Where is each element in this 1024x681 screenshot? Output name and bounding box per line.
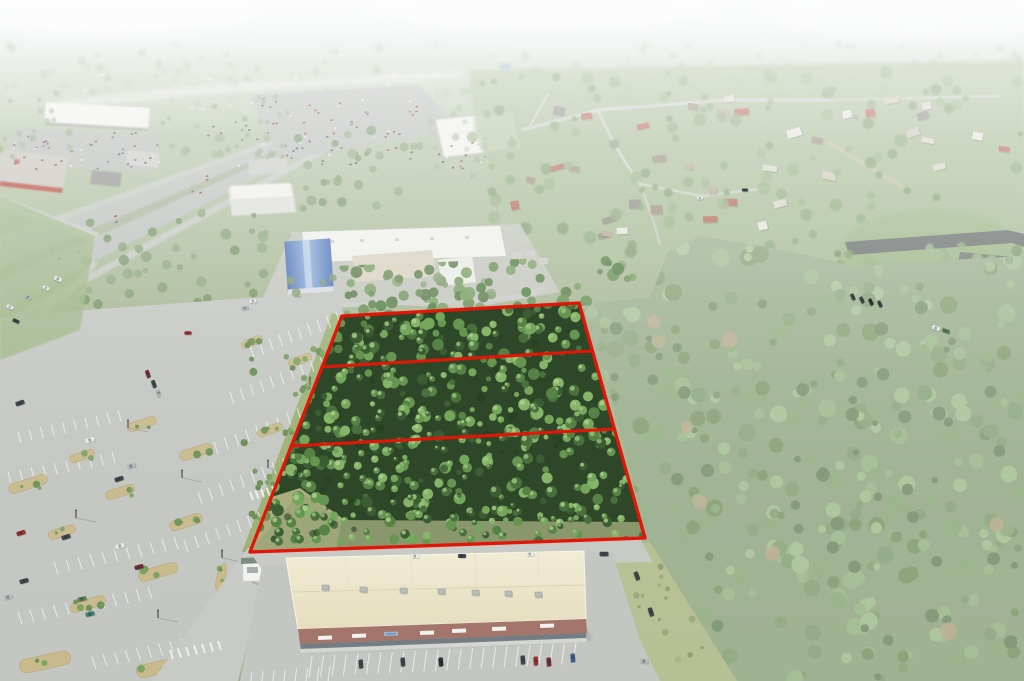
tree-highlight [549, 334, 553, 338]
tree [194, 124, 199, 129]
tree [400, 143, 409, 152]
tree [366, 125, 376, 135]
bush [257, 480, 263, 486]
canopy-shadow [351, 527, 357, 533]
tree [809, 230, 818, 239]
tree-highlight [392, 486, 395, 489]
tree-highlight [567, 448, 571, 452]
tree [156, 61, 162, 67]
tree-highlight [393, 318, 395, 320]
tree [337, 539, 343, 545]
tree [515, 373, 525, 383]
light-pole-head [309, 377, 311, 379]
tree [78, 58, 86, 66]
tree [522, 52, 530, 60]
tree-highlight [441, 373, 444, 376]
tree-highlight [435, 446, 437, 448]
tree-highlight [294, 495, 299, 500]
tree-highlight [343, 499, 346, 502]
tree [399, 334, 405, 340]
storefront-sign [540, 624, 554, 628]
tree [450, 392, 461, 403]
tree-highlight [386, 517, 391, 522]
tree [278, 113, 282, 117]
tree [443, 89, 452, 98]
tree [365, 328, 374, 337]
island-bush [20, 485, 23, 488]
tree [720, 162, 728, 170]
tree [1011, 51, 1018, 58]
tree-highlight [517, 464, 521, 468]
tree [574, 484, 581, 491]
tree [245, 133, 250, 138]
tree [305, 481, 316, 492]
tree [456, 364, 467, 375]
tree [392, 317, 397, 322]
tree [974, 52, 979, 57]
tree [417, 374, 428, 385]
tree [477, 421, 482, 426]
tree [173, 78, 177, 82]
tree-highlight [418, 408, 421, 411]
tree-highlight [399, 335, 402, 338]
tree-highlight [568, 517, 571, 520]
tree-highlight [502, 386, 505, 389]
tree [700, 106, 707, 113]
tree [572, 116, 578, 122]
tree [489, 413, 497, 421]
tree [624, 275, 631, 282]
tree [176, 218, 183, 225]
tree [633, 592, 639, 598]
tree-highlight [539, 428, 542, 431]
tree [94, 52, 99, 57]
tree [280, 155, 284, 159]
tree-highlight [556, 327, 559, 330]
tree [476, 157, 482, 163]
tree [476, 438, 482, 444]
tree-highlight [416, 415, 420, 419]
parked-car-speck [477, 143, 480, 145]
tree [478, 292, 489, 303]
tree [876, 171, 883, 178]
tree [256, 148, 263, 155]
tree-highlight [613, 488, 617, 492]
storefront-sign [420, 631, 434, 635]
tree [323, 400, 330, 407]
tree [337, 197, 346, 206]
tree-highlight [426, 411, 429, 414]
tree [259, 269, 268, 278]
tree [811, 156, 816, 161]
canopy-shadow [467, 329, 471, 333]
tree-highlight [272, 518, 277, 523]
distant-building [229, 105, 233, 107]
tree [952, 85, 961, 94]
island-bush [302, 356, 308, 362]
tree-highlight [312, 512, 316, 516]
tree [344, 131, 352, 139]
tree [391, 297, 397, 303]
tree [873, 152, 883, 162]
island-bush [55, 531, 58, 534]
tree [292, 288, 301, 297]
tree [350, 332, 362, 344]
tree [822, 109, 833, 120]
tree-highlight [376, 482, 381, 487]
tree [261, 99, 266, 104]
tree [341, 517, 348, 524]
tree [400, 323, 412, 335]
tree [365, 369, 373, 377]
tree-highlight [372, 390, 375, 393]
tree-highlight [366, 329, 370, 333]
tree-highlight [427, 373, 429, 375]
parked-car-speck [13, 144, 16, 146]
tree [284, 354, 290, 360]
tree [536, 274, 545, 283]
tree [477, 522, 484, 529]
tree [730, 114, 742, 126]
tree [271, 516, 282, 527]
hvac-unit [360, 587, 367, 592]
tree [393, 457, 398, 462]
tree-highlight [469, 510, 472, 513]
tree [706, 103, 714, 111]
tree-highlight [331, 411, 335, 415]
car-glass [744, 189, 746, 191]
tree [385, 372, 394, 381]
tree [362, 429, 369, 436]
tree [124, 79, 131, 86]
tree [235, 144, 239, 148]
tree [660, 92, 669, 101]
tree [197, 210, 205, 218]
tree [433, 273, 443, 283]
aerial-photo [0, 0, 1024, 681]
tree-highlight [461, 420, 464, 423]
tree [627, 240, 637, 250]
tree [717, 198, 729, 210]
tree [334, 345, 343, 354]
tree [516, 463, 524, 471]
tree [49, 70, 54, 75]
canopy-shadow [326, 507, 329, 510]
tree [962, 95, 969, 102]
tree [462, 474, 467, 479]
canopy-shadow [351, 498, 357, 504]
tree [245, 281, 251, 287]
tree [686, 44, 691, 49]
tree-highlight [378, 391, 382, 395]
tree-highlight [540, 314, 542, 316]
service-unit [512, 252, 522, 259]
tree [249, 368, 257, 376]
tree [663, 216, 675, 228]
tree-highlight [451, 352, 454, 355]
tree [397, 411, 407, 421]
tree [593, 494, 604, 505]
tree [244, 75, 251, 82]
tree [263, 230, 269, 236]
tree-highlight [364, 529, 367, 532]
tree [550, 121, 559, 130]
tree [792, 238, 799, 245]
canopy-shadow [402, 443, 407, 448]
tree [763, 68, 774, 79]
tree-highlight [600, 472, 604, 476]
tree [459, 529, 467, 537]
canopy-shadow [294, 469, 302, 477]
tree [315, 426, 321, 432]
tree [371, 455, 378, 462]
tree [456, 469, 462, 475]
tree [37, 98, 41, 102]
car-glass [414, 555, 416, 558]
tree [274, 527, 283, 536]
tree [310, 456, 320, 466]
tree [539, 313, 545, 319]
tree [452, 133, 460, 141]
tree [578, 406, 587, 415]
tree [3, 85, 9, 91]
tree [141, 251, 152, 262]
tree [350, 512, 355, 517]
tree [491, 54, 495, 58]
tree-highlight [497, 373, 502, 378]
tree [658, 583, 661, 586]
tree [53, 90, 59, 96]
tree [856, 214, 866, 224]
tree-highlight [427, 432, 429, 434]
tree [627, 59, 631, 63]
tree [588, 407, 599, 418]
tree [167, 116, 171, 120]
tree [32, 129, 36, 133]
tree [348, 534, 355, 541]
bush [320, 350, 325, 355]
tree [458, 412, 466, 420]
canopy-shadow [369, 378, 374, 383]
tree-highlight [398, 412, 402, 416]
tree-highlight [412, 319, 416, 323]
tree [428, 119, 434, 125]
tree [880, 66, 893, 79]
tree-highlight [371, 428, 374, 431]
rooftop-unit [465, 236, 469, 239]
tree [375, 151, 384, 160]
tree-highlight [333, 426, 337, 430]
tree [423, 318, 435, 330]
tree [229, 110, 234, 115]
tree [664, 188, 673, 197]
tree [506, 152, 514, 160]
tree-highlight [416, 511, 419, 514]
tree [423, 532, 431, 540]
tree [89, 88, 97, 96]
tree [342, 499, 348, 505]
tree [365, 535, 373, 543]
tree-highlight [408, 495, 411, 498]
tree [399, 290, 409, 300]
tree [578, 364, 586, 372]
hvac-unit [472, 590, 479, 595]
island-bush [81, 450, 88, 457]
canopy-shadow [319, 488, 326, 495]
tree [683, 177, 693, 187]
distant-building [161, 94, 167, 97]
canopy-shadow [408, 411, 416, 419]
parked-car-speck [364, 111, 367, 113]
tree [306, 195, 316, 205]
tree-highlight [518, 318, 523, 323]
tree [513, 517, 523, 527]
tree-highlight [612, 530, 616, 534]
tree [450, 111, 457, 118]
tree-highlight [584, 420, 589, 425]
tree [497, 506, 508, 517]
tree-highlight [588, 474, 592, 478]
light-pole-head [181, 470, 183, 472]
island-bush [135, 425, 139, 429]
tree [834, 250, 841, 257]
tree [333, 49, 339, 55]
tree-highlight [506, 428, 511, 433]
tree [486, 441, 491, 446]
rooftop-unit [360, 239, 364, 242]
strip-mall [240, 551, 660, 681]
car-glass [602, 552, 605, 555]
tree [355, 155, 362, 162]
bush [287, 427, 292, 432]
tree [476, 283, 486, 293]
storefront-sign [492, 627, 506, 631]
parked-car-speck [41, 159, 44, 161]
tree [467, 535, 475, 543]
tree [294, 134, 303, 143]
tree [375, 44, 384, 53]
car [411, 554, 420, 559]
tree-highlight [491, 487, 496, 492]
tree [444, 400, 451, 407]
tree [198, 56, 204, 62]
tree [340, 426, 350, 436]
tree-highlight [344, 473, 347, 476]
tree [303, 161, 312, 170]
tree [501, 386, 508, 393]
tree [486, 376, 491, 381]
tree [154, 73, 160, 79]
tree [351, 266, 363, 278]
tree [652, 184, 658, 190]
tree [301, 375, 307, 381]
car-glass [521, 658, 524, 661]
tree [257, 95, 262, 100]
tree [256, 338, 263, 345]
hvac-unit [438, 589, 445, 594]
tree [833, 169, 841, 177]
tree [435, 479, 443, 487]
tree [341, 399, 351, 409]
tree-highlight [512, 478, 517, 483]
tree [468, 368, 476, 376]
tree [330, 512, 338, 520]
tree-highlight [468, 353, 472, 357]
tree [867, 202, 876, 211]
tree [701, 179, 710, 188]
tree [612, 263, 624, 275]
canopy-shadow [531, 339, 539, 347]
tree [548, 333, 558, 343]
car [438, 657, 444, 667]
tree [29, 135, 36, 142]
tree-highlight [618, 516, 621, 519]
tree-highlight [436, 416, 439, 419]
tree-highlight [570, 386, 575, 391]
tree [639, 187, 645, 193]
tree-highlight [469, 341, 474, 346]
car-glass [359, 662, 362, 665]
tree [995, 45, 1003, 53]
tree [593, 93, 602, 102]
tree [766, 142, 773, 149]
tree-highlight [533, 406, 536, 409]
tree [384, 270, 394, 280]
house [652, 154, 666, 162]
tree-highlight [386, 373, 390, 377]
tree [395, 275, 404, 284]
tree-highlight [544, 435, 546, 437]
tree [707, 59, 714, 66]
tree [540, 498, 547, 505]
tree [420, 506, 427, 513]
tree-highlight [520, 400, 525, 405]
tree-highlight [397, 465, 401, 469]
island-bush [193, 451, 201, 459]
tree [510, 503, 516, 509]
tree [352, 424, 363, 435]
tree [539, 371, 545, 377]
canopy-shadow [557, 437, 563, 443]
tree [313, 69, 320, 76]
tree [489, 321, 496, 328]
tree [798, 198, 805, 205]
tree [343, 472, 350, 479]
tree-highlight [368, 480, 371, 483]
tree [638, 605, 641, 608]
tree-highlight [456, 342, 460, 346]
tree [485, 278, 493, 286]
tree [333, 177, 342, 186]
tree [570, 330, 580, 340]
service-unit [526, 250, 535, 256]
tree [378, 473, 387, 482]
tree [118, 242, 127, 251]
tree [756, 53, 761, 58]
tree [573, 61, 580, 68]
tree-highlight [342, 518, 345, 521]
tree [494, 105, 505, 116]
parked-car-speck [90, 144, 93, 146]
parked-car-speck [256, 138, 259, 140]
tree [800, 209, 812, 221]
tree [521, 287, 531, 297]
car [526, 552, 535, 557]
tree [470, 407, 475, 412]
tree-highlight [554, 379, 559, 384]
tree [368, 290, 375, 297]
island-bush [153, 572, 160, 579]
